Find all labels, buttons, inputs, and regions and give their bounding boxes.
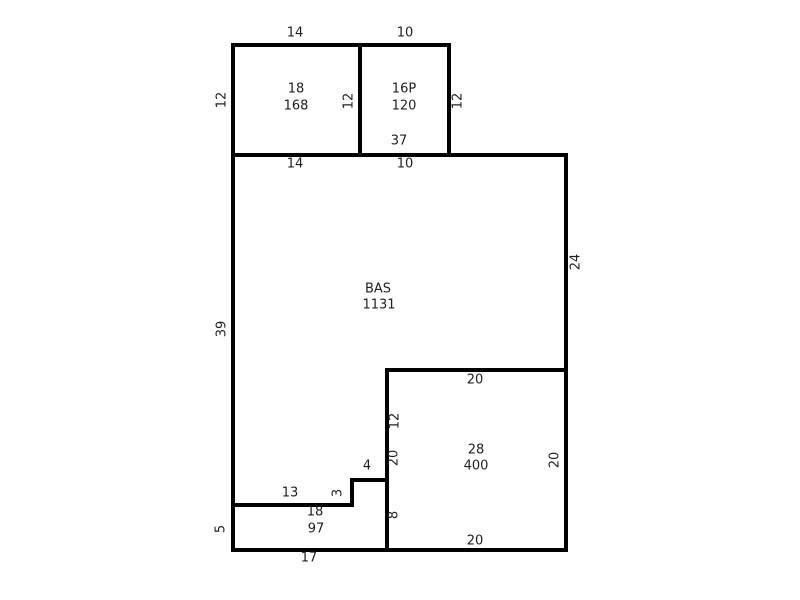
room-top-right-area: 120: [392, 100, 417, 113]
dim-step-height: 3: [332, 489, 345, 497]
wall-lower-right-top: [385, 368, 568, 372]
dim-step-width: 4: [363, 460, 371, 473]
room-lower-right-area: 400: [464, 460, 489, 473]
wall-notch-horizontal: [231, 503, 354, 507]
wall-top-outer: [231, 43, 451, 47]
dim-main-width-left-segment: 14: [287, 158, 304, 171]
dim-lower-right-left-full: 20: [388, 450, 401, 467]
dim-bottom-left-height: 5: [215, 525, 228, 533]
wall-right: [564, 153, 568, 552]
room-top-left-area: 168: [284, 100, 309, 113]
dim-divider-height: 12: [343, 93, 356, 110]
dim-bottom-left-width: 17: [301, 552, 318, 565]
dim-top-left-height-left: 12: [216, 92, 229, 109]
dim-top-right-height-right: 12: [452, 93, 465, 110]
dim-main-width-total: 37: [391, 135, 408, 148]
room-top-right-code: 16P: [392, 83, 416, 96]
room-main-area: 1131: [362, 299, 395, 312]
room-bottom-left-code: 18: [307, 506, 324, 519]
dim-main-height-left: 39: [216, 321, 229, 338]
dim-top-left-width-top: 14: [287, 27, 304, 40]
room-bottom-left-area: 97: [308, 523, 325, 536]
dim-lower-right-left-lower: 8: [388, 511, 401, 519]
dim-lower-right-left-upper: 12: [389, 413, 402, 430]
dim-lower-right-height-right: 20: [549, 452, 562, 469]
dim-main-height-right: 24: [570, 254, 583, 271]
dim-lower-right-width-top: 20: [467, 374, 484, 387]
room-top-left-code: 18: [288, 83, 305, 96]
wall-step-horizontal: [350, 478, 389, 482]
floor-plan-sketch: 14 12 18 168 12 10 16P 120 12 37 14 10 B…: [0, 0, 800, 600]
wall-top-rooms-divider: [358, 43, 362, 157]
room-main-code: BAS: [365, 283, 391, 296]
room-lower-right-code: 28: [468, 444, 485, 457]
dim-lower-right-width-bottom: 20: [467, 535, 484, 548]
wall-left: [231, 43, 235, 552]
dim-notch-width: 13: [282, 487, 299, 500]
dim-main-width-right-segment: 10: [397, 158, 414, 171]
wall-bottom: [231, 548, 568, 552]
dim-top-right-width-top: 10: [397, 27, 414, 40]
